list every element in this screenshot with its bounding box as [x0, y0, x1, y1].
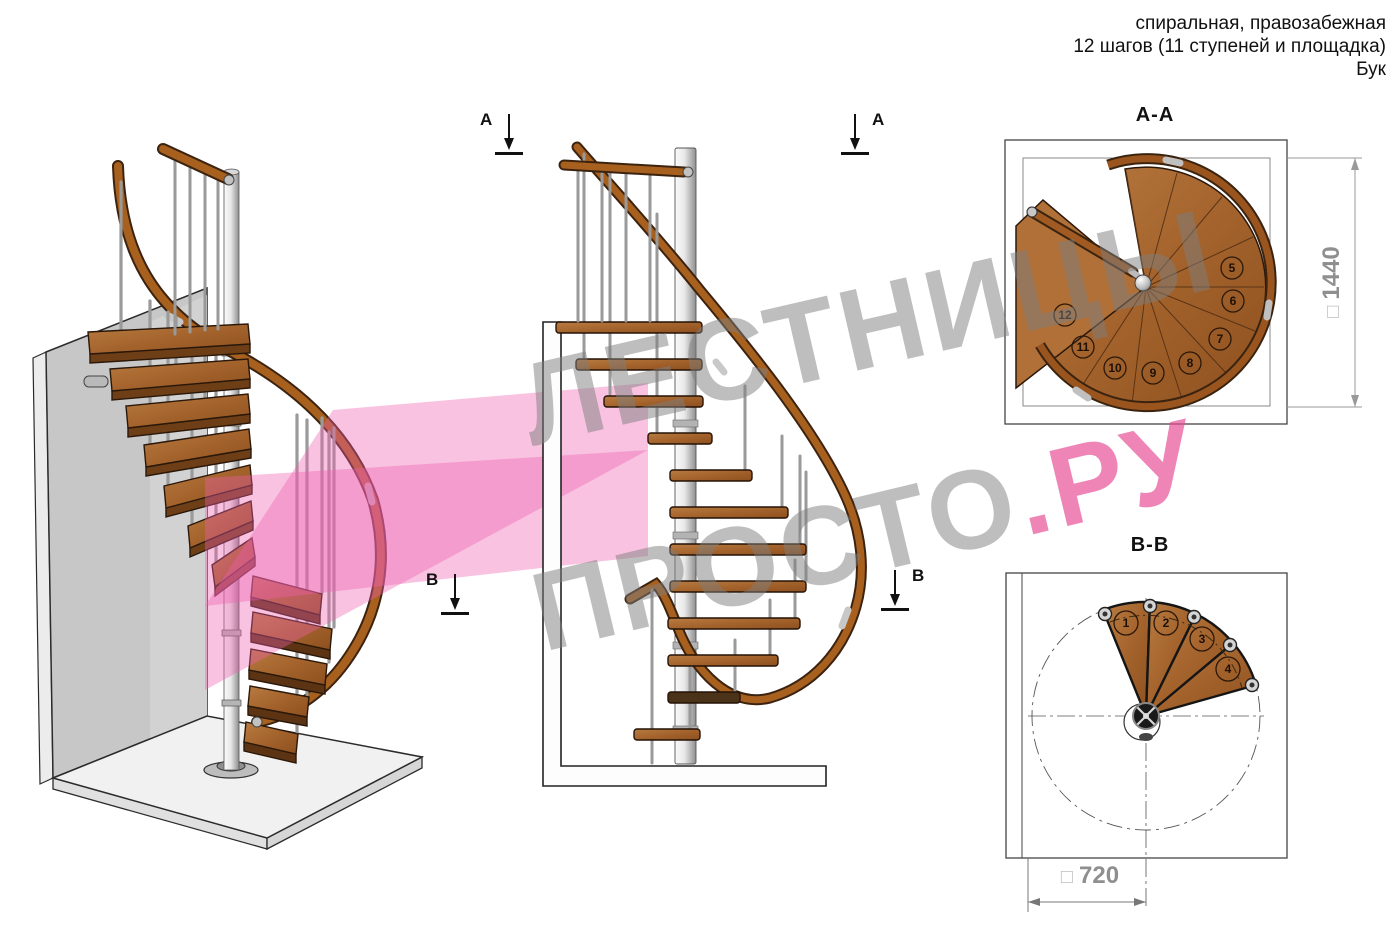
svg-text:2: 2 [1163, 616, 1170, 630]
header-line2: 12 шагов (11 ступеней и площадка) [1073, 35, 1386, 58]
section-arrow-icon [440, 572, 470, 618]
wall-bracket [84, 376, 108, 387]
section-marker-a-right: А [840, 112, 886, 158]
svg-text:10: 10 [1108, 361, 1122, 375]
section-letter: В [910, 568, 926, 584]
section-letter: А [478, 112, 494, 128]
header-line3: Бук [1073, 58, 1386, 81]
square-symbol: □ [1061, 866, 1073, 888]
plan-bb-title: В-В [1090, 534, 1210, 557]
svg-text:5: 5 [1229, 261, 1236, 275]
section-marker-a-left: А [478, 112, 524, 158]
pole-section [1124, 703, 1160, 741]
staircase-technical-drawing: 5 6 7 8 9 10 11 12 [0, 0, 1400, 931]
header-line1: спиральная, правозабежная [1073, 12, 1386, 35]
dimension-1440-label: □1440 [1318, 182, 1346, 382]
section-letter: А [870, 112, 886, 128]
svg-text:4: 4 [1225, 662, 1232, 676]
section-letter: В [424, 572, 440, 588]
header-note: спиральная, правозабежная 12 шагов (11 с… [1073, 12, 1386, 81]
drawing-page: 5 6 7 8 9 10 11 12 [0, 0, 1400, 931]
rail-end-cap [252, 717, 262, 727]
dimension-value: 1440 [1318, 246, 1345, 299]
svg-text:1: 1 [1123, 616, 1130, 630]
svg-text:12: 12 [1058, 308, 1072, 322]
plan-aa-title: А-А [1095, 104, 1215, 127]
dimension-720-label: □720 [1032, 862, 1148, 890]
section-marker-b-right: В [880, 568, 926, 614]
section-plane-b [205, 383, 648, 690]
svg-text:8: 8 [1187, 356, 1194, 370]
rail-sleeve [716, 362, 724, 372]
svg-text:9: 9 [1150, 366, 1157, 380]
section-marker-b-left: В [424, 572, 470, 618]
svg-text:11: 11 [1077, 340, 1090, 354]
svg-text:7: 7 [1217, 332, 1224, 346]
section-arrow-icon [494, 112, 524, 158]
wall [33, 288, 207, 784]
center-pole [673, 148, 698, 764]
stair-plan [1016, 159, 1271, 408]
svg-text:3: 3 [1199, 632, 1206, 646]
plan-aa-view: 5 6 7 8 9 10 11 12 [1005, 140, 1362, 424]
dimension-value: 720 [1079, 862, 1119, 889]
square-symbol: □ [1322, 306, 1344, 318]
section-arrow-icon [880, 568, 910, 614]
handrail-ball-end [1135, 275, 1151, 291]
section-arrow-icon [840, 112, 870, 158]
svg-text:6: 6 [1230, 294, 1237, 308]
